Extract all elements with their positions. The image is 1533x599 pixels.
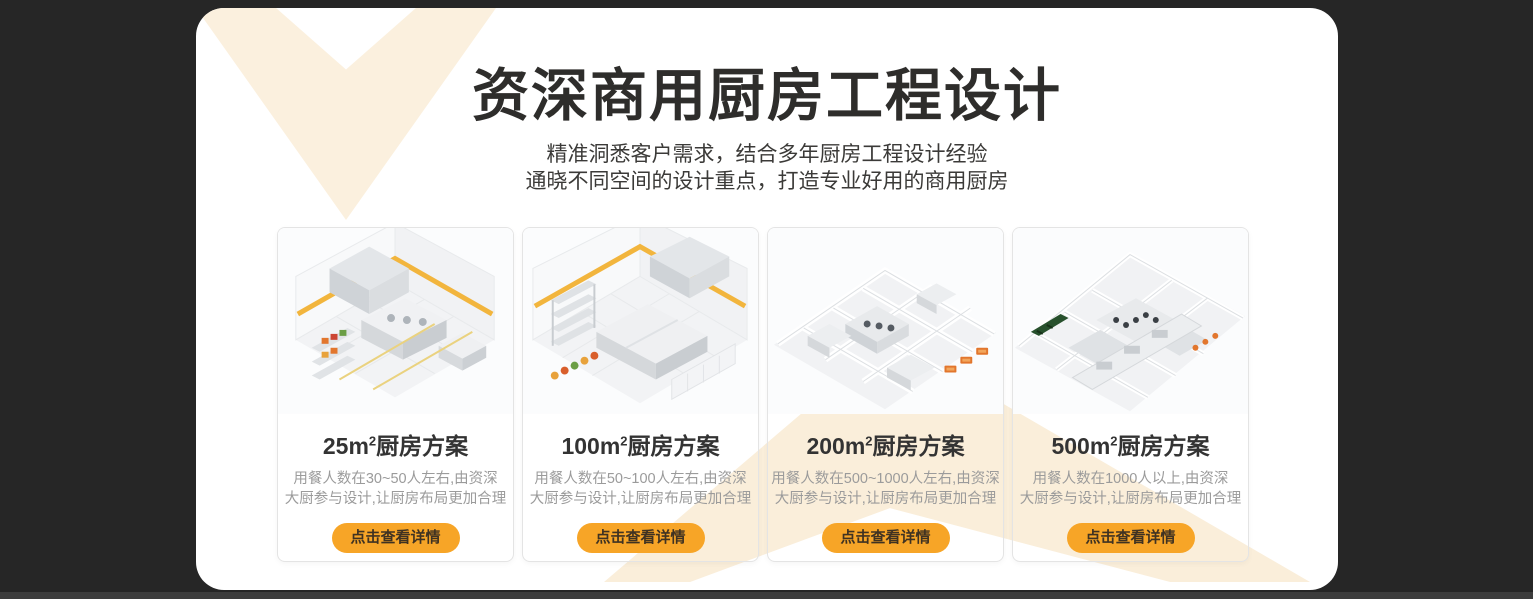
page-subtitle-line1: 精准洞悉客户需求，结合多年厨房工程设计经验 — [196, 138, 1338, 168]
plan-card-25: 25m2厨房方案 用餐人数在30~50人左右,由资深大厨参与设计,让厨房布局更加… — [277, 227, 514, 562]
kitchen-isometric-image-100 — [523, 228, 758, 414]
view-details-button[interactable]: 点击查看详情 — [577, 523, 705, 553]
plan-cards: 25m2厨房方案 用餐人数在30~50人左右,由资深大厨参与设计,让厨房布局更加… — [277, 227, 1249, 562]
kitchen-isometric-image-25 — [278, 228, 513, 414]
kitchen-isometric-image-200 — [768, 228, 1003, 414]
plan-card-description: 用餐人数在30~50人左右,由资深大厨参与设计,让厨房布局更加合理 — [278, 469, 513, 509]
view-details-button[interactable]: 点击查看详情 — [822, 523, 950, 553]
plan-card-100: 100m2厨房方案 用餐人数在50~100人左右,由资深大厨参与设计,让厨房布局… — [522, 227, 759, 562]
page-footer-strip — [0, 592, 1533, 599]
plan-card-500: 500m2厨房方案 用餐人数在1000人以上,由资深大厨参与设计,让厨房布局更加… — [1012, 227, 1249, 562]
page-subtitle-line2: 通晓不同空间的设计重点，打造专业好用的商用厨房 — [196, 165, 1338, 195]
view-details-button[interactable]: 点击查看详情 — [332, 523, 460, 553]
content-panel: 资深商用厨房工程设计 精准洞悉客户需求，结合多年厨房工程设计经验 通晓不同空间的… — [196, 8, 1338, 590]
plan-card-title: 500m2厨房方案 — [1013, 427, 1248, 461]
page-background: 资深商用厨房工程设计 精准洞悉客户需求，结合多年厨房工程设计经验 通晓不同空间的… — [0, 0, 1533, 599]
page-title: 资深商用厨房工程设计 — [196, 50, 1338, 132]
plan-card-title: 200m2厨房方案 — [768, 427, 1003, 461]
plan-card-description: 用餐人数在500~1000人左右,由资深大厨参与设计,让厨房布局更加合理 — [768, 469, 1003, 509]
plan-card-title: 25m2厨房方案 — [278, 427, 513, 461]
plan-card-title: 100m2厨房方案 — [523, 427, 758, 461]
plan-card-description: 用餐人数在1000人以上,由资深大厨参与设计,让厨房布局更加合理 — [1013, 469, 1248, 509]
view-details-button[interactable]: 点击查看详情 — [1067, 523, 1195, 553]
plan-card-200: 200m2厨房方案 用餐人数在500~1000人左右,由资深大厨参与设计,让厨房… — [767, 227, 1004, 562]
plan-card-description: 用餐人数在50~100人左右,由资深大厨参与设计,让厨房布局更加合理 — [523, 469, 758, 509]
kitchen-isometric-image-500 — [1013, 228, 1248, 414]
